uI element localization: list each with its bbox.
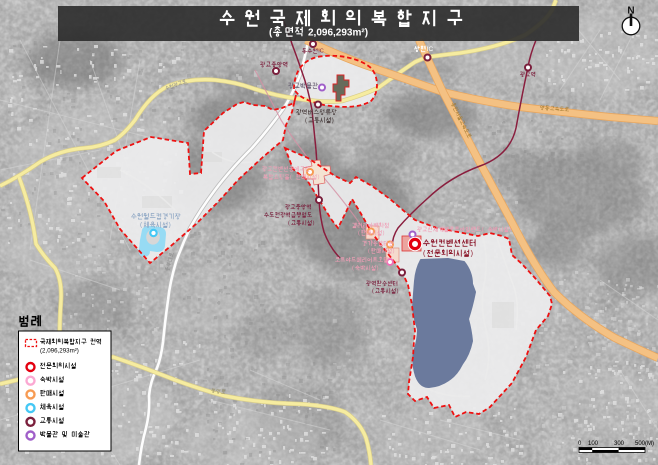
svg-text:IC: IC bbox=[318, 49, 324, 55]
svg-text:): ) bbox=[393, 249, 395, 255]
svg-text:): ) bbox=[377, 266, 379, 272]
svg-text:(2,096,293m²): (2,096,293m²) bbox=[40, 348, 79, 355]
svg-text:(: ( bbox=[305, 118, 307, 124]
svg-text:(: ( bbox=[288, 221, 290, 227]
svg-text:): ) bbox=[509, 227, 511, 233]
svg-text:(: ( bbox=[358, 231, 360, 237]
svg-text:): ) bbox=[332, 118, 334, 124]
svg-text:(: ( bbox=[352, 266, 354, 272]
svg-text:): ) bbox=[471, 248, 473, 257]
svg-text:IC: IC bbox=[427, 46, 434, 53]
svg-text:(: ( bbox=[290, 175, 292, 181]
svg-text:2,096,293m²): 2,096,293m²) bbox=[308, 28, 368, 39]
svg-text:(: ( bbox=[482, 227, 484, 233]
svg-text:): ) bbox=[383, 231, 385, 237]
svg-text:300: 300 bbox=[614, 441, 625, 447]
svg-text:): ) bbox=[169, 222, 171, 229]
svg-text:): ) bbox=[397, 289, 399, 295]
svg-text:(: ( bbox=[368, 249, 370, 255]
svg-text:): ) bbox=[318, 175, 320, 181]
svg-text:): ) bbox=[313, 221, 315, 227]
svg-text:100: 100 bbox=[588, 441, 599, 447]
svg-text:500(M): 500(M) bbox=[635, 441, 654, 447]
svg-text:(: ( bbox=[372, 289, 374, 295]
